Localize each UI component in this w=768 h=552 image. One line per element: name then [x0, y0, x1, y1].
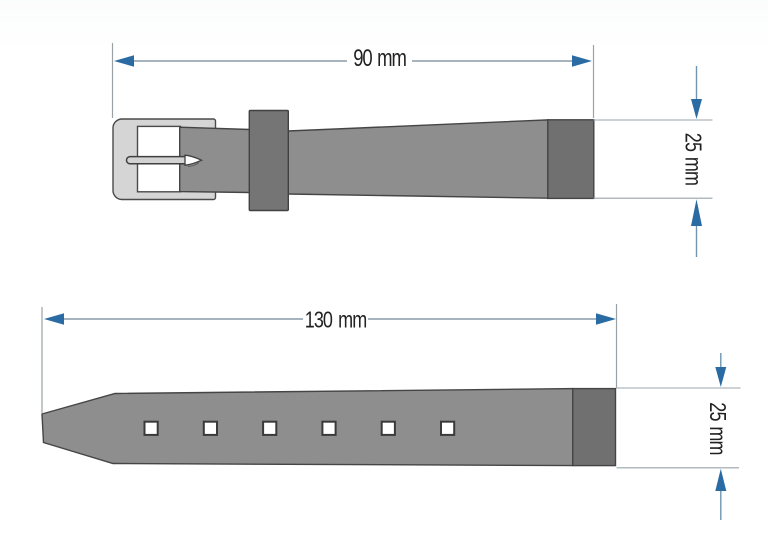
- svg-text:130 mm: 130 mm: [305, 307, 367, 333]
- svg-text:25 mm: 25 mm: [704, 402, 730, 454]
- svg-text:90 mm: 90 mm: [353, 45, 406, 72]
- svg-text:25 mm: 25 mm: [680, 133, 706, 185]
